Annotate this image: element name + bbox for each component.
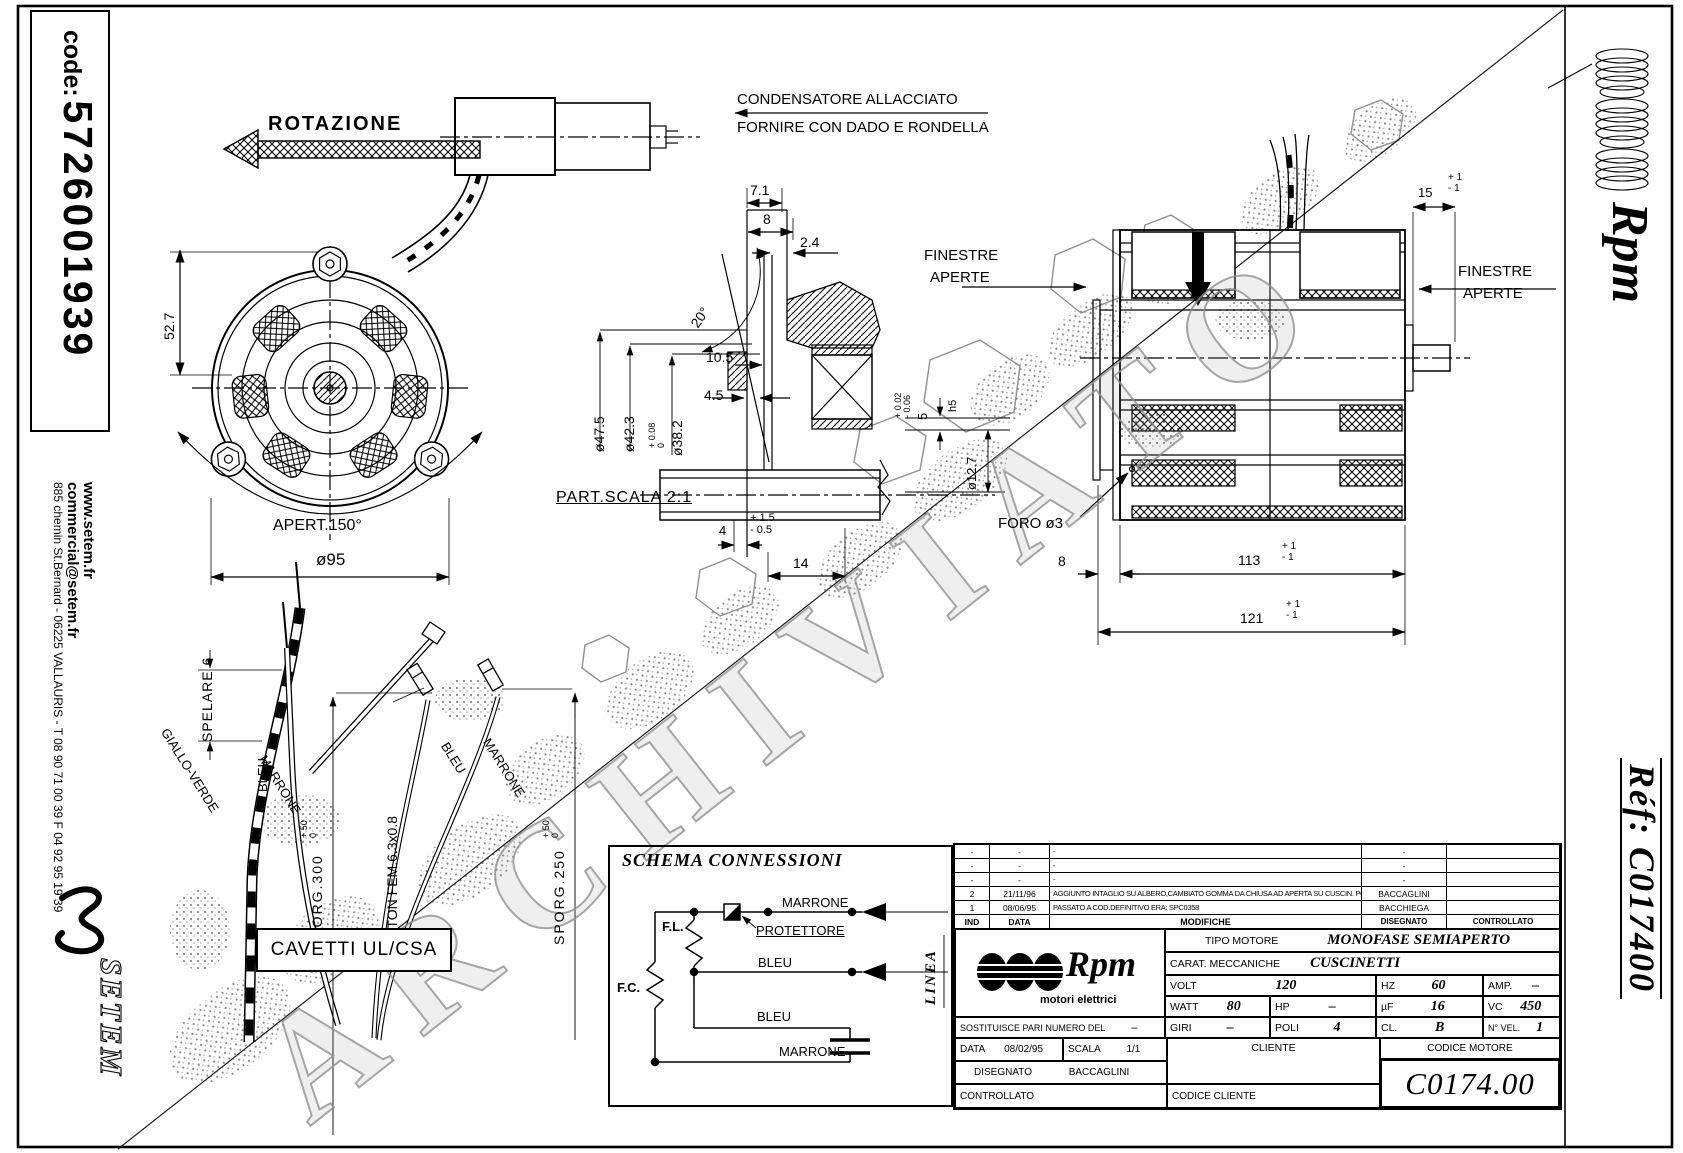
dim-h5: h5 bbox=[948, 400, 960, 412]
vc-label: VC bbox=[1484, 1001, 1503, 1013]
aperture-label: APERT.150° bbox=[273, 518, 362, 535]
hz-label: HZ bbox=[1377, 980, 1395, 992]
dim-4-5: 4.5 bbox=[704, 388, 723, 403]
poli-cell: POLI4 bbox=[1270, 1017, 1376, 1038]
dim-2-4: 2.4 bbox=[800, 235, 819, 250]
ref-label: Réf: C017400 bbox=[1620, 758, 1662, 999]
codice-motore-value-cell: C0174.00 bbox=[1380, 1059, 1560, 1108]
rotation-label: ROTAZIONE bbox=[268, 114, 402, 135]
poli-label: POLI bbox=[1271, 1022, 1299, 1034]
giri-cell: GIRI– bbox=[1165, 1017, 1270, 1038]
schema-bleu-bottom: BLEU bbox=[757, 1010, 791, 1024]
section-title: PART.SCALA 2:1 bbox=[556, 490, 692, 507]
scala-cell: SCALA 1/1 bbox=[1063, 1038, 1167, 1061]
nvel-label: N° VEL. bbox=[1484, 1023, 1520, 1033]
code-label: code: bbox=[58, 30, 86, 97]
carat-cell: CARAT. MECCANICHE CUSCINETTI bbox=[1165, 952, 1560, 975]
tipo-motore-cell: TIPO MOTORE MONOFASE SEMIAPERTO bbox=[1165, 929, 1560, 952]
dim-dia12-7: ø12.7 bbox=[965, 457, 979, 490]
sostituisce-value: – bbox=[1105, 1020, 1164, 1035]
email: commercial@setem.fr bbox=[65, 482, 81, 912]
mod-cell: 1 bbox=[955, 901, 990, 915]
mod-cell: - bbox=[955, 859, 990, 873]
mod-hdr-ind: IND bbox=[955, 915, 990, 929]
mod-hdr-desc: MODIFICHE bbox=[1050, 915, 1362, 929]
scala-value: 1/1 bbox=[1101, 1044, 1166, 1055]
data-cell: DATA 08/02/95 bbox=[955, 1038, 1063, 1061]
schema-marrone-top: MARRONE bbox=[782, 896, 848, 910]
finestre-right-2: APERTE bbox=[1463, 286, 1523, 302]
dim-dia38-2: ø38.2 bbox=[670, 420, 685, 456]
watt-label: WATT bbox=[1166, 1001, 1199, 1013]
dim-52-7: 52.7 bbox=[162, 313, 177, 340]
codice-cliente-label: CODICE CLIENTE bbox=[1168, 1091, 1256, 1102]
dim-121: 121 bbox=[1240, 611, 1263, 626]
dim-15: 15 bbox=[1418, 186, 1432, 200]
dim-14: 14 bbox=[793, 556, 809, 571]
hp-label: HP bbox=[1271, 1001, 1290, 1013]
uf-cell: µF16 bbox=[1376, 996, 1483, 1017]
dim-113: 113 bbox=[1238, 553, 1260, 568]
code-value: 5726001939 bbox=[55, 100, 101, 358]
volt-label: VOLT bbox=[1166, 980, 1197, 992]
rotation-arrow bbox=[224, 130, 480, 168]
cliente-label: CLIENTE bbox=[1251, 1042, 1295, 1054]
finestre-right-1: FINESTRE bbox=[1458, 264, 1532, 280]
dim-8-sect: 8 bbox=[763, 212, 771, 227]
codice-motore-value: C0174.00 bbox=[1405, 1066, 1534, 1102]
schema-protettore: PROTETTORE bbox=[756, 924, 845, 938]
carat-label: CARAT. MECCANICHE bbox=[1166, 958, 1280, 970]
nvel-value: 1 bbox=[1520, 1020, 1559, 1036]
rpm-brand-text: Rpm bbox=[1601, 202, 1656, 303]
dim-15-tol: + 1 - 1 bbox=[1448, 172, 1462, 194]
dim-5-tol: + 0.02 - 0.06 bbox=[894, 393, 912, 418]
schema-fl: F.L. bbox=[662, 920, 684, 934]
dim-dia38-2-tol: + 0.08 0 bbox=[648, 423, 666, 448]
sporg250-label: SPORG.250 bbox=[552, 849, 567, 945]
mod-cell: - bbox=[955, 845, 990, 859]
volt-cell: VOLT120 bbox=[1165, 975, 1376, 996]
uf-label: µF bbox=[1377, 1001, 1393, 1013]
vc-value: 450 bbox=[1503, 999, 1559, 1015]
giri-label: GIRI bbox=[1166, 1022, 1192, 1034]
cavetti-label: CAVETTI UL/CSA bbox=[271, 940, 438, 960]
disegnato-label: DISEGNATO bbox=[956, 1067, 1032, 1078]
vc-cell: VC450 bbox=[1483, 996, 1560, 1017]
amp-value: – bbox=[1512, 978, 1559, 994]
schema-fc: F.C. bbox=[617, 981, 640, 995]
hz-value: 60 bbox=[1395, 978, 1482, 994]
nvel-cell: N° VEL.1 bbox=[1483, 1017, 1560, 1038]
dim-113-tol: + 1 - 1 bbox=[1282, 541, 1296, 563]
mod-hdr-data: DATA bbox=[990, 915, 1050, 929]
dim-121-tol: + 1 - 1 bbox=[1286, 599, 1300, 621]
rpm-logo-subtitle: motori elettrici bbox=[1040, 995, 1116, 1007]
website: www.setem.fr bbox=[80, 482, 96, 912]
capacitor bbox=[392, 98, 700, 272]
tipo-motore-value: MONOFASE SEMIAPERTO bbox=[1278, 932, 1559, 949]
drawing-sheet: SETEM ARCHIVIATO code: 5726001939 www.se… bbox=[0, 0, 1683, 1153]
dim-dia95: ø95 bbox=[316, 551, 345, 569]
cl-label: CL. bbox=[1377, 1022, 1397, 1034]
volt-value: 120 bbox=[1197, 978, 1375, 994]
dim-5: 5 bbox=[916, 413, 930, 420]
hp-cell: HP– bbox=[1270, 996, 1376, 1017]
codice-motore-label-cell: CODICE MOTORE bbox=[1380, 1038, 1560, 1059]
cl-cell: CL.B bbox=[1376, 1017, 1483, 1038]
rpm-coil-logo bbox=[1548, 49, 1648, 190]
controllato-cell: CONTROLLATO bbox=[955, 1084, 1167, 1108]
setem-logo-text: SETEM bbox=[94, 958, 129, 1078]
codice-cliente-cell: CODICE CLIENTE bbox=[1167, 1084, 1380, 1108]
giri-value: – bbox=[1192, 1020, 1269, 1036]
dim-8-side: 8 bbox=[1058, 554, 1066, 569]
watt-cell: WATT80 bbox=[1165, 996, 1270, 1017]
sostituisce-label: SOSTITUISCE PARI NUMERO DEL bbox=[956, 1023, 1105, 1033]
disegnato-cell: DISEGNATO BACCAGLINI bbox=[955, 1061, 1167, 1084]
mod-cell: 2 bbox=[955, 887, 990, 901]
poli-value: 4 bbox=[1299, 1020, 1375, 1036]
contact-block: www.setem.fr commercial@setem.fr 885 che… bbox=[52, 482, 96, 912]
data-label: DATA bbox=[956, 1044, 985, 1055]
cavetti-box: CAVETTI UL/CSA bbox=[256, 928, 452, 972]
schema-linea: LINEA bbox=[924, 949, 940, 1005]
rpm-logo-text: Rpm bbox=[1066, 946, 1136, 984]
hp-value: – bbox=[1290, 999, 1375, 1015]
schema-box bbox=[608, 845, 953, 1107]
schema-marrone-bottom: MARRONE bbox=[779, 1045, 845, 1059]
data-value: 08/02/95 bbox=[985, 1044, 1062, 1055]
mod-cell: - bbox=[955, 873, 990, 887]
tipo-motore-label: TIPO MOTORE bbox=[1201, 935, 1278, 947]
watt-value: 80 bbox=[1199, 999, 1269, 1015]
hz-cell: HZ60 bbox=[1376, 975, 1483, 996]
modification-table: ---- ---- ---- 221/11/96AGGIUNTO INTAGLI… bbox=[955, 845, 1560, 929]
dim-4-tol: + 1.5 - 0.5 bbox=[750, 512, 775, 536]
controllato-label: CONTROLLATO bbox=[956, 1091, 1034, 1102]
foro-label: FORO ø3 bbox=[998, 516, 1063, 532]
mod-hdr-dis: DISEGNATO bbox=[1362, 915, 1447, 929]
cliente-cell: CLIENTE bbox=[1167, 1038, 1380, 1084]
disegnato-value: BACCAGLINI bbox=[1032, 1067, 1166, 1078]
address: 885 chemin St.Bernard - 06225 VALLAURIS … bbox=[52, 482, 65, 912]
scala-label: SCALA bbox=[1064, 1044, 1101, 1055]
capacitor-note-2: FORNIRE CON DADO E RONDELLA bbox=[737, 120, 989, 136]
mod-hdr-con: CONTROLLATO bbox=[1447, 915, 1560, 929]
motor-front-view bbox=[178, 246, 482, 540]
sostituisce-cell: SOSTITUISCE PARI NUMERO DEL – bbox=[955, 1017, 1165, 1038]
dim-7-1: 7.1 bbox=[750, 183, 769, 198]
code-block: code: 5726001939 bbox=[56, 30, 99, 358]
carat-value: CUSCINETTI bbox=[1280, 955, 1559, 972]
finestre-left-2: APERTE bbox=[930, 270, 990, 286]
codice-motore-label: CODICE MOTORE bbox=[1427, 1043, 1512, 1054]
dim-10-5: 10.5 bbox=[706, 350, 733, 365]
sporg250-tol: + 50 0 bbox=[542, 820, 560, 838]
schema-bleu-top: BLEU bbox=[758, 956, 792, 970]
amp-cell: AMP.– bbox=[1483, 975, 1560, 996]
wire-spelare-label: SPELARE 6 bbox=[200, 657, 215, 742]
amp-label: AMP. bbox=[1484, 980, 1512, 992]
sporg300-tol: + 50 0 bbox=[300, 820, 318, 838]
finestre-left-1: FINESTRE bbox=[924, 248, 998, 264]
uf-value: 16 bbox=[1393, 999, 1482, 1015]
dim-dia47-5: ø47.5 bbox=[592, 416, 607, 452]
capacitor-note-1: CONDENSATORE ALLACCIATO bbox=[737, 92, 958, 108]
dim-4: 4 bbox=[719, 524, 726, 538]
schema-title: SCHEMA CONNESSIONI bbox=[622, 851, 843, 870]
dim-dia42-3: ø42.3 bbox=[622, 416, 637, 452]
cl-value: B bbox=[1397, 1020, 1482, 1036]
